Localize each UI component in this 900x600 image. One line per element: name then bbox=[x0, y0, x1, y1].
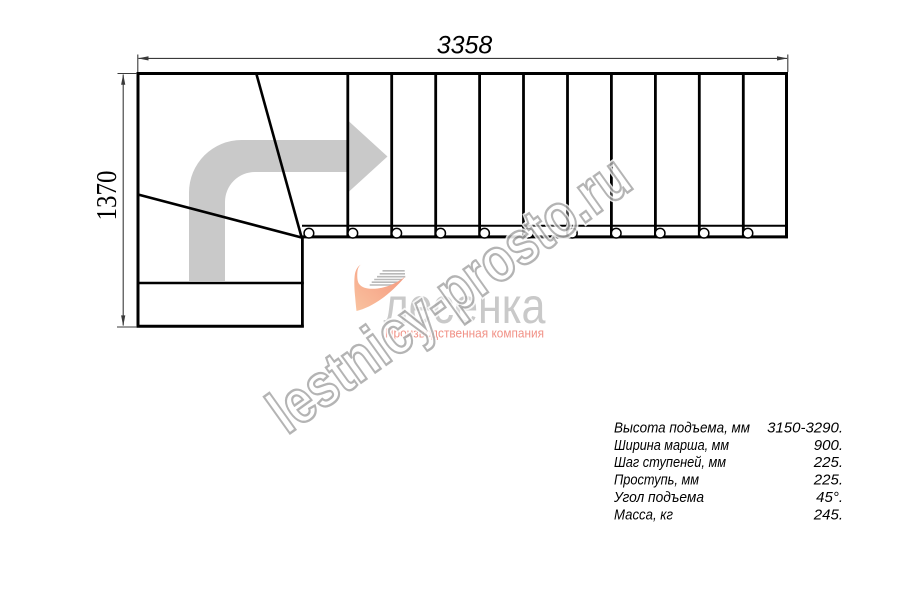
svg-text:3358: 3358 bbox=[437, 32, 493, 60]
svg-text:900.: 900. bbox=[814, 437, 843, 454]
svg-text:245.: 245. bbox=[813, 506, 843, 523]
svg-text:Ширина марша, мм: Ширина марша, мм bbox=[614, 437, 729, 454]
svg-text:Проступь, мм: Проступь, мм bbox=[614, 472, 699, 489]
svg-text:45°.: 45°. bbox=[816, 489, 843, 506]
svg-text:3150-3290.: 3150-3290. bbox=[767, 419, 843, 436]
svg-text:Угол подъема: Угол подъема bbox=[613, 489, 704, 506]
svg-text:225.: 225. bbox=[813, 454, 843, 471]
svg-text:Шаг ступеней, мм: Шаг ступеней, мм bbox=[614, 454, 726, 471]
svg-text:Высота подъема, мм: Высота подъема, мм bbox=[614, 419, 750, 436]
svg-text:1370: 1370 bbox=[91, 171, 123, 221]
svg-text:225.: 225. bbox=[813, 472, 843, 489]
svg-text:Масса, кг: Масса, кг bbox=[614, 506, 674, 523]
